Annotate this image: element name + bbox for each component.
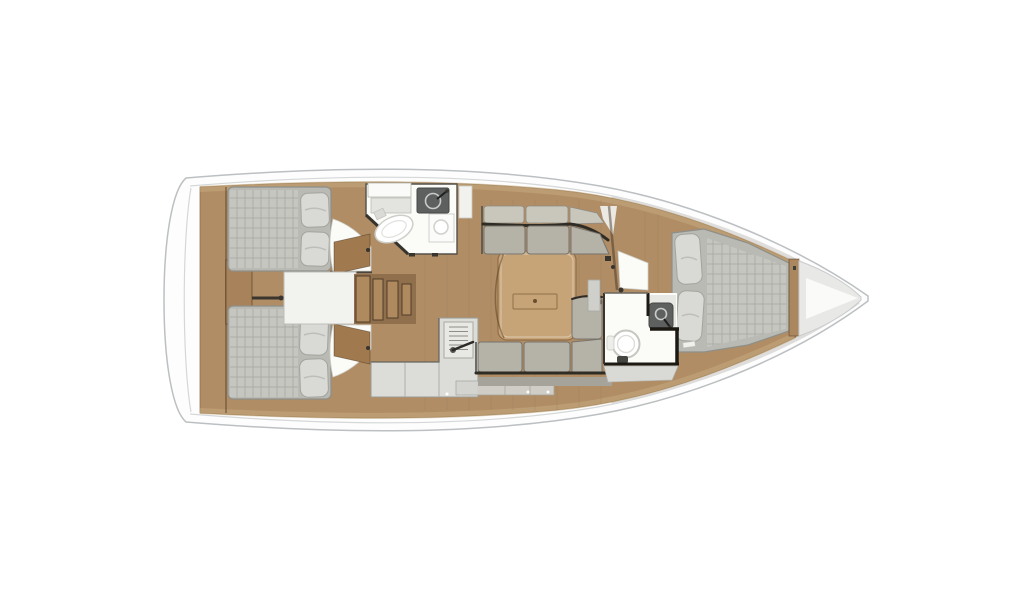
companionway	[284, 272, 416, 324]
seat-cushion	[527, 226, 569, 254]
wardrobe	[368, 183, 411, 197]
pillow	[674, 233, 702, 285]
seat-cushion	[524, 342, 570, 372]
floor-plan-canvas	[0, 0, 1024, 600]
door-hardware	[605, 256, 611, 261]
pillow	[675, 290, 704, 342]
door-hinge	[366, 248, 370, 252]
backrest-cushion	[484, 206, 524, 223]
mast-post-dot	[533, 299, 537, 303]
toilet-tank	[607, 336, 614, 350]
step-3	[387, 281, 398, 318]
cabinet-knob	[547, 391, 550, 394]
forward-head	[604, 288, 679, 383]
companionway-landing	[284, 272, 356, 324]
door-hinge	[366, 346, 370, 350]
backrest-cushion	[526, 206, 568, 223]
step-2	[373, 279, 383, 320]
seat-cushion	[478, 342, 522, 372]
berth-foot-plank	[789, 259, 799, 336]
faucet-base	[445, 189, 449, 193]
door-hinge	[611, 265, 615, 269]
backrest-strip	[478, 377, 612, 386]
brush-holder	[617, 356, 628, 363]
hull-shelf	[604, 366, 678, 382]
plank-fitting	[793, 266, 796, 270]
door-hardware	[432, 253, 438, 257]
divider-latch	[279, 296, 284, 301]
locker-front	[459, 186, 472, 218]
step-4	[402, 284, 411, 315]
locker-sliver	[588, 280, 600, 311]
cabinet-knob	[527, 391, 530, 394]
saloon-table	[498, 251, 576, 340]
door-hardware	[409, 253, 415, 257]
seat-cushion	[572, 339, 602, 372]
seat-cushion	[484, 226, 525, 254]
toilet	[613, 331, 640, 358]
mattress-quilt	[230, 190, 298, 268]
step-1	[356, 276, 370, 322]
shower-drain	[434, 220, 448, 234]
boat-floor-plan	[0, 0, 1024, 600]
door-hardware	[619, 288, 624, 293]
cabinet-knob	[446, 393, 449, 396]
